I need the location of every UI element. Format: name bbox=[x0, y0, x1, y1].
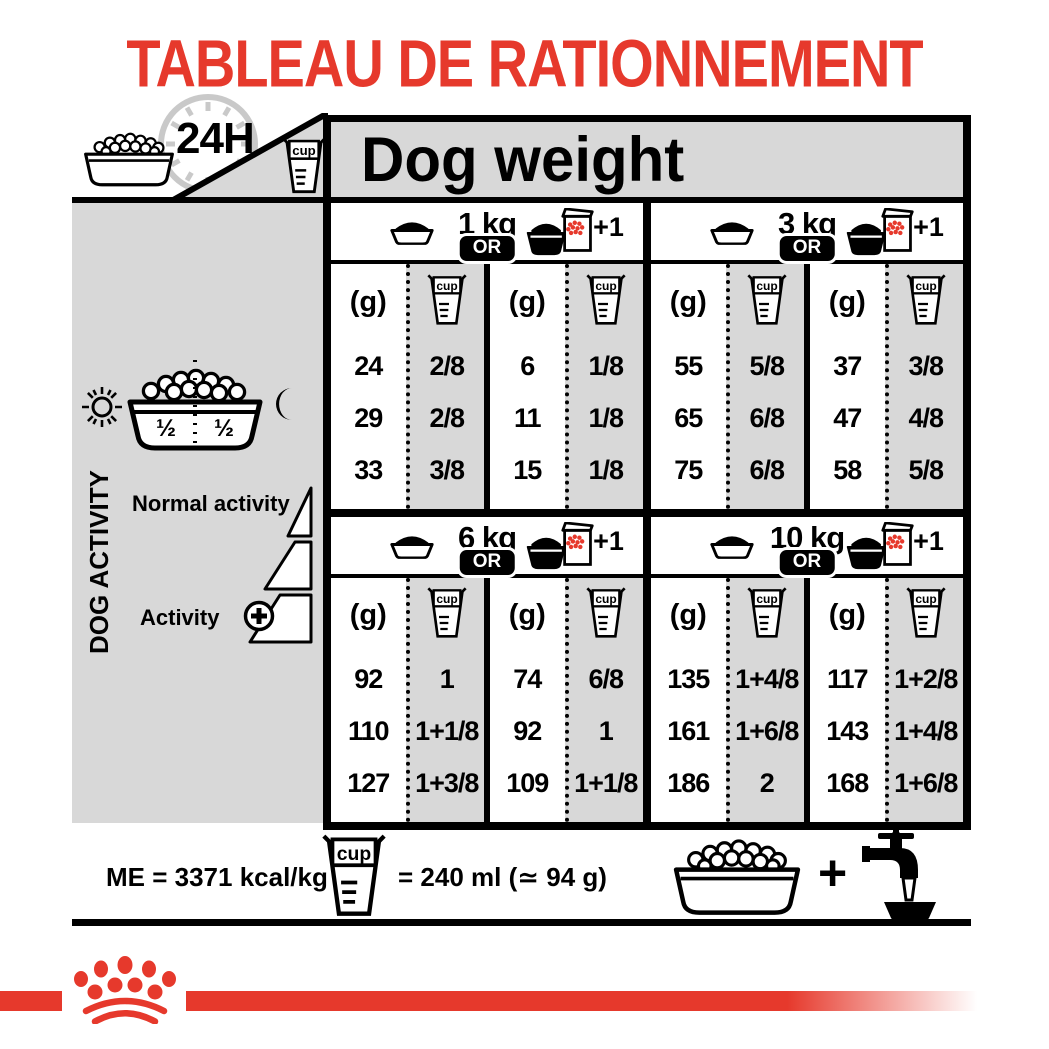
grams-value: 47 bbox=[833, 403, 861, 434]
cup-icon bbox=[906, 274, 946, 326]
bowl-and-bag-icon bbox=[844, 522, 916, 570]
cup-value: 1+2/8 bbox=[894, 664, 957, 695]
cup-value: 3/8 bbox=[908, 351, 943, 382]
grams-value: 75 bbox=[674, 455, 702, 486]
dog-weight-table: Dog weight 1 kg +1 OR (g) 24 2 bbox=[323, 115, 971, 830]
grams-column: (g) 117 143 168 bbox=[810, 578, 885, 823]
weight-section-3kg: 3 kg +1 OR (g) 55 65 75 bbox=[647, 203, 963, 513]
metabolizable-energy-label: ME = 3371 kcal/kg bbox=[106, 862, 328, 893]
cup-value: 1+4/8 bbox=[735, 664, 798, 695]
plus-one-label: +1 bbox=[593, 526, 624, 557]
grams-header: (g) bbox=[670, 286, 707, 319]
grams-value: 58 bbox=[833, 455, 861, 486]
brand-stripe-right bbox=[186, 991, 977, 1011]
grams-value: 168 bbox=[826, 768, 868, 799]
plus-one-label: +1 bbox=[913, 526, 944, 557]
cup-value: 4/8 bbox=[908, 403, 943, 434]
grams-value: 92 bbox=[354, 664, 382, 695]
cup-value: 5/8 bbox=[749, 351, 784, 382]
bowl-plus-bag-columns: (g) 117 143 168 1+2/8 1+4/8 1+6/8 bbox=[810, 578, 963, 823]
cups-column: 2/8 2/8 3/8 bbox=[406, 264, 485, 509]
cups-column: 1+4/8 1+6/8 2 bbox=[726, 578, 805, 823]
grams-value: 65 bbox=[674, 403, 702, 434]
cup-value: 5/8 bbox=[908, 455, 943, 486]
grams-value: 6 bbox=[520, 351, 534, 382]
grams-value: 109 bbox=[506, 768, 548, 799]
grams-column: (g) 74 92 109 bbox=[490, 578, 565, 823]
cup-value: 1/8 bbox=[588, 351, 623, 382]
cup-value: 1 bbox=[599, 716, 613, 747]
cup-icon bbox=[747, 587, 787, 639]
cup-equivalence-label: = 240 ml (≃ 94 g) bbox=[398, 862, 607, 893]
section-body: (g) 92 110 127 1 1+1/8 1+3/8 bbox=[331, 578, 643, 823]
grams-column: (g) 55 65 75 bbox=[651, 264, 726, 509]
grams-value: 135 bbox=[667, 664, 709, 695]
cup-value: 3/8 bbox=[429, 455, 464, 486]
grams-value: 110 bbox=[348, 716, 389, 747]
cups-column: 5/8 6/8 6/8 bbox=[726, 264, 805, 509]
weight-section-6kg: 6 kg +1 OR (g) 92 110 127 bbox=[331, 513, 647, 823]
grams-column: (g) 37 47 58 bbox=[810, 264, 885, 509]
grams-value: 11 bbox=[514, 403, 541, 434]
cup-value: 6/8 bbox=[588, 664, 623, 695]
cup-icon bbox=[586, 587, 626, 639]
bowl-only-columns: (g) 135 161 186 1+4/8 1+6/8 2 bbox=[651, 578, 810, 823]
kibble-bowl-icon bbox=[656, 832, 818, 918]
grams-header: (g) bbox=[509, 286, 546, 319]
bowl-plus-bag-columns: (g) 6 11 15 1/8 1/8 1/8 bbox=[490, 264, 643, 509]
bowl-and-bag-icon bbox=[524, 522, 596, 570]
plus-one-label: +1 bbox=[593, 212, 624, 243]
dog-activity-label: DOG ACTIVITY bbox=[84, 478, 115, 654]
grams-value: 186 bbox=[667, 768, 709, 799]
cups-column: 3/8 4/8 5/8 bbox=[885, 264, 964, 509]
grams-value: 29 bbox=[354, 403, 382, 434]
grams-header: (g) bbox=[670, 599, 707, 632]
grams-header: (g) bbox=[350, 599, 387, 632]
grams-column: (g) 6 11 15 bbox=[490, 264, 565, 509]
half-left-label: ½ bbox=[156, 415, 176, 442]
rationing-table-panel: cup bbox=[0, 0, 1049, 1049]
footer-divider-line bbox=[72, 919, 971, 926]
cup-value: 1+1/8 bbox=[415, 716, 478, 747]
cup-value: 1+3/8 bbox=[415, 768, 478, 799]
cup-value: 1 bbox=[440, 664, 454, 695]
grams-value: 143 bbox=[826, 716, 868, 747]
brand-stripe-left bbox=[0, 991, 62, 1011]
moon-icon bbox=[270, 386, 302, 422]
bowl-plus-bag-columns: (g) 74 92 109 6/8 1 1+1/8 bbox=[490, 578, 643, 823]
cups-column: 6/8 1 1+1/8 bbox=[565, 578, 644, 823]
section-header: 1 kg +1 OR bbox=[331, 203, 643, 264]
cup-icon bbox=[906, 587, 946, 639]
grams-value: 24 bbox=[354, 351, 382, 382]
dog-activity-sidebar: ½ ½ DOG ACTIVITY Normal activity Activit… bbox=[72, 203, 323, 823]
half-right-label: ½ bbox=[214, 415, 234, 442]
weight-sections-grid: 1 kg +1 OR (g) 24 29 33 bbox=[331, 203, 963, 822]
section-body: (g) 55 65 75 5/8 6/8 6/8 bbox=[651, 264, 963, 509]
cup-icon bbox=[427, 274, 467, 326]
cups-column: 1 1+1/8 1+3/8 bbox=[406, 578, 485, 823]
cup-value: 1/8 bbox=[588, 455, 623, 486]
plus-one-label: +1 bbox=[913, 212, 944, 243]
cup-value: 2/8 bbox=[429, 351, 464, 382]
crown-paw-logo bbox=[70, 950, 180, 1024]
bowl-and-bag-icon bbox=[524, 208, 596, 256]
grams-header: (g) bbox=[829, 599, 866, 632]
cup-icon bbox=[427, 587, 467, 639]
cup-value: 2 bbox=[760, 768, 774, 799]
cups-column: 1/8 1/8 1/8 bbox=[565, 264, 644, 509]
measuring-cup-icon bbox=[317, 834, 391, 918]
weight-section-10kg: 10 kg +1 OR (g) 135 161 186 bbox=[647, 513, 963, 823]
cup-value: 1+4/8 bbox=[894, 716, 957, 747]
bowl-plus-bag-columns: (g) 37 47 58 3/8 4/8 5/8 bbox=[810, 264, 963, 509]
cup-icon bbox=[586, 274, 626, 326]
section-header: 10 kg +1 OR bbox=[651, 517, 963, 578]
or-badge: OR bbox=[777, 233, 838, 264]
cup-value: 2/8 bbox=[429, 403, 464, 434]
cup-value: 1/8 bbox=[588, 403, 623, 434]
or-badge: OR bbox=[777, 547, 838, 578]
cup-value: 6/8 bbox=[749, 455, 784, 486]
bowl-only-columns: (g) 92 110 127 1 1+1/8 1+3/8 bbox=[331, 578, 490, 823]
cup-value: 1+6/8 bbox=[894, 768, 957, 799]
cup-value: 1+6/8 bbox=[735, 716, 798, 747]
grams-value: 37 bbox=[833, 351, 861, 382]
bowl-only-columns: (g) 55 65 75 5/8 6/8 6/8 bbox=[651, 264, 810, 509]
grams-header: (g) bbox=[350, 286, 387, 319]
dog-weight-header: Dog weight bbox=[331, 122, 963, 203]
activity-label: Activity bbox=[140, 605, 219, 631]
cup-icon bbox=[747, 274, 787, 326]
bowl-and-bag-icon bbox=[844, 208, 916, 256]
grams-header: (g) bbox=[509, 599, 546, 632]
grams-column: (g) 135 161 186 bbox=[651, 578, 726, 823]
kibble-bowl-icon bbox=[78, 116, 180, 200]
section-body: (g) 135 161 186 1+4/8 1+6/8 2 bbox=[651, 578, 963, 823]
page-title: TABLEAU DE RATIONNEMENT bbox=[0, 24, 1049, 89]
grams-value: 117 bbox=[827, 664, 868, 695]
plus-circle-icon bbox=[242, 599, 276, 633]
water-tap-icon bbox=[854, 826, 938, 922]
grams-value: 55 bbox=[674, 351, 702, 382]
cup-value: 6/8 bbox=[749, 403, 784, 434]
grams-value: 127 bbox=[347, 768, 389, 799]
grams-column: (g) 92 110 127 bbox=[331, 578, 406, 823]
plus-sign: + bbox=[818, 844, 847, 902]
section-header: 3 kg +1 OR bbox=[651, 203, 963, 264]
cups-column: 1+2/8 1+4/8 1+6/8 bbox=[885, 578, 964, 823]
bowl-only-columns: (g) 24 29 33 2/8 2/8 3/8 bbox=[331, 264, 490, 509]
grams-value: 161 bbox=[667, 716, 709, 747]
grams-column: (g) 24 29 33 bbox=[331, 264, 406, 509]
grams-header: (g) bbox=[829, 286, 866, 319]
half-bowl-icon: ½ ½ bbox=[118, 358, 272, 475]
grams-value: 74 bbox=[513, 664, 541, 695]
section-body: (g) 24 29 33 2/8 2/8 3/8 bbox=[331, 264, 643, 509]
or-badge: OR bbox=[457, 547, 518, 578]
measuring-cup-icon bbox=[282, 137, 326, 195]
grams-value: 33 bbox=[354, 455, 382, 486]
section-header: 6 kg +1 OR bbox=[331, 517, 643, 578]
grams-value: 15 bbox=[513, 455, 541, 486]
grams-value: 92 bbox=[513, 716, 541, 747]
cup-value: 1+1/8 bbox=[574, 768, 637, 799]
weight-section-1kg: 1 kg +1 OR (g) 24 29 33 bbox=[331, 203, 647, 513]
or-badge: OR bbox=[457, 233, 518, 264]
dog-weight-title: Dog weight bbox=[361, 123, 684, 195]
